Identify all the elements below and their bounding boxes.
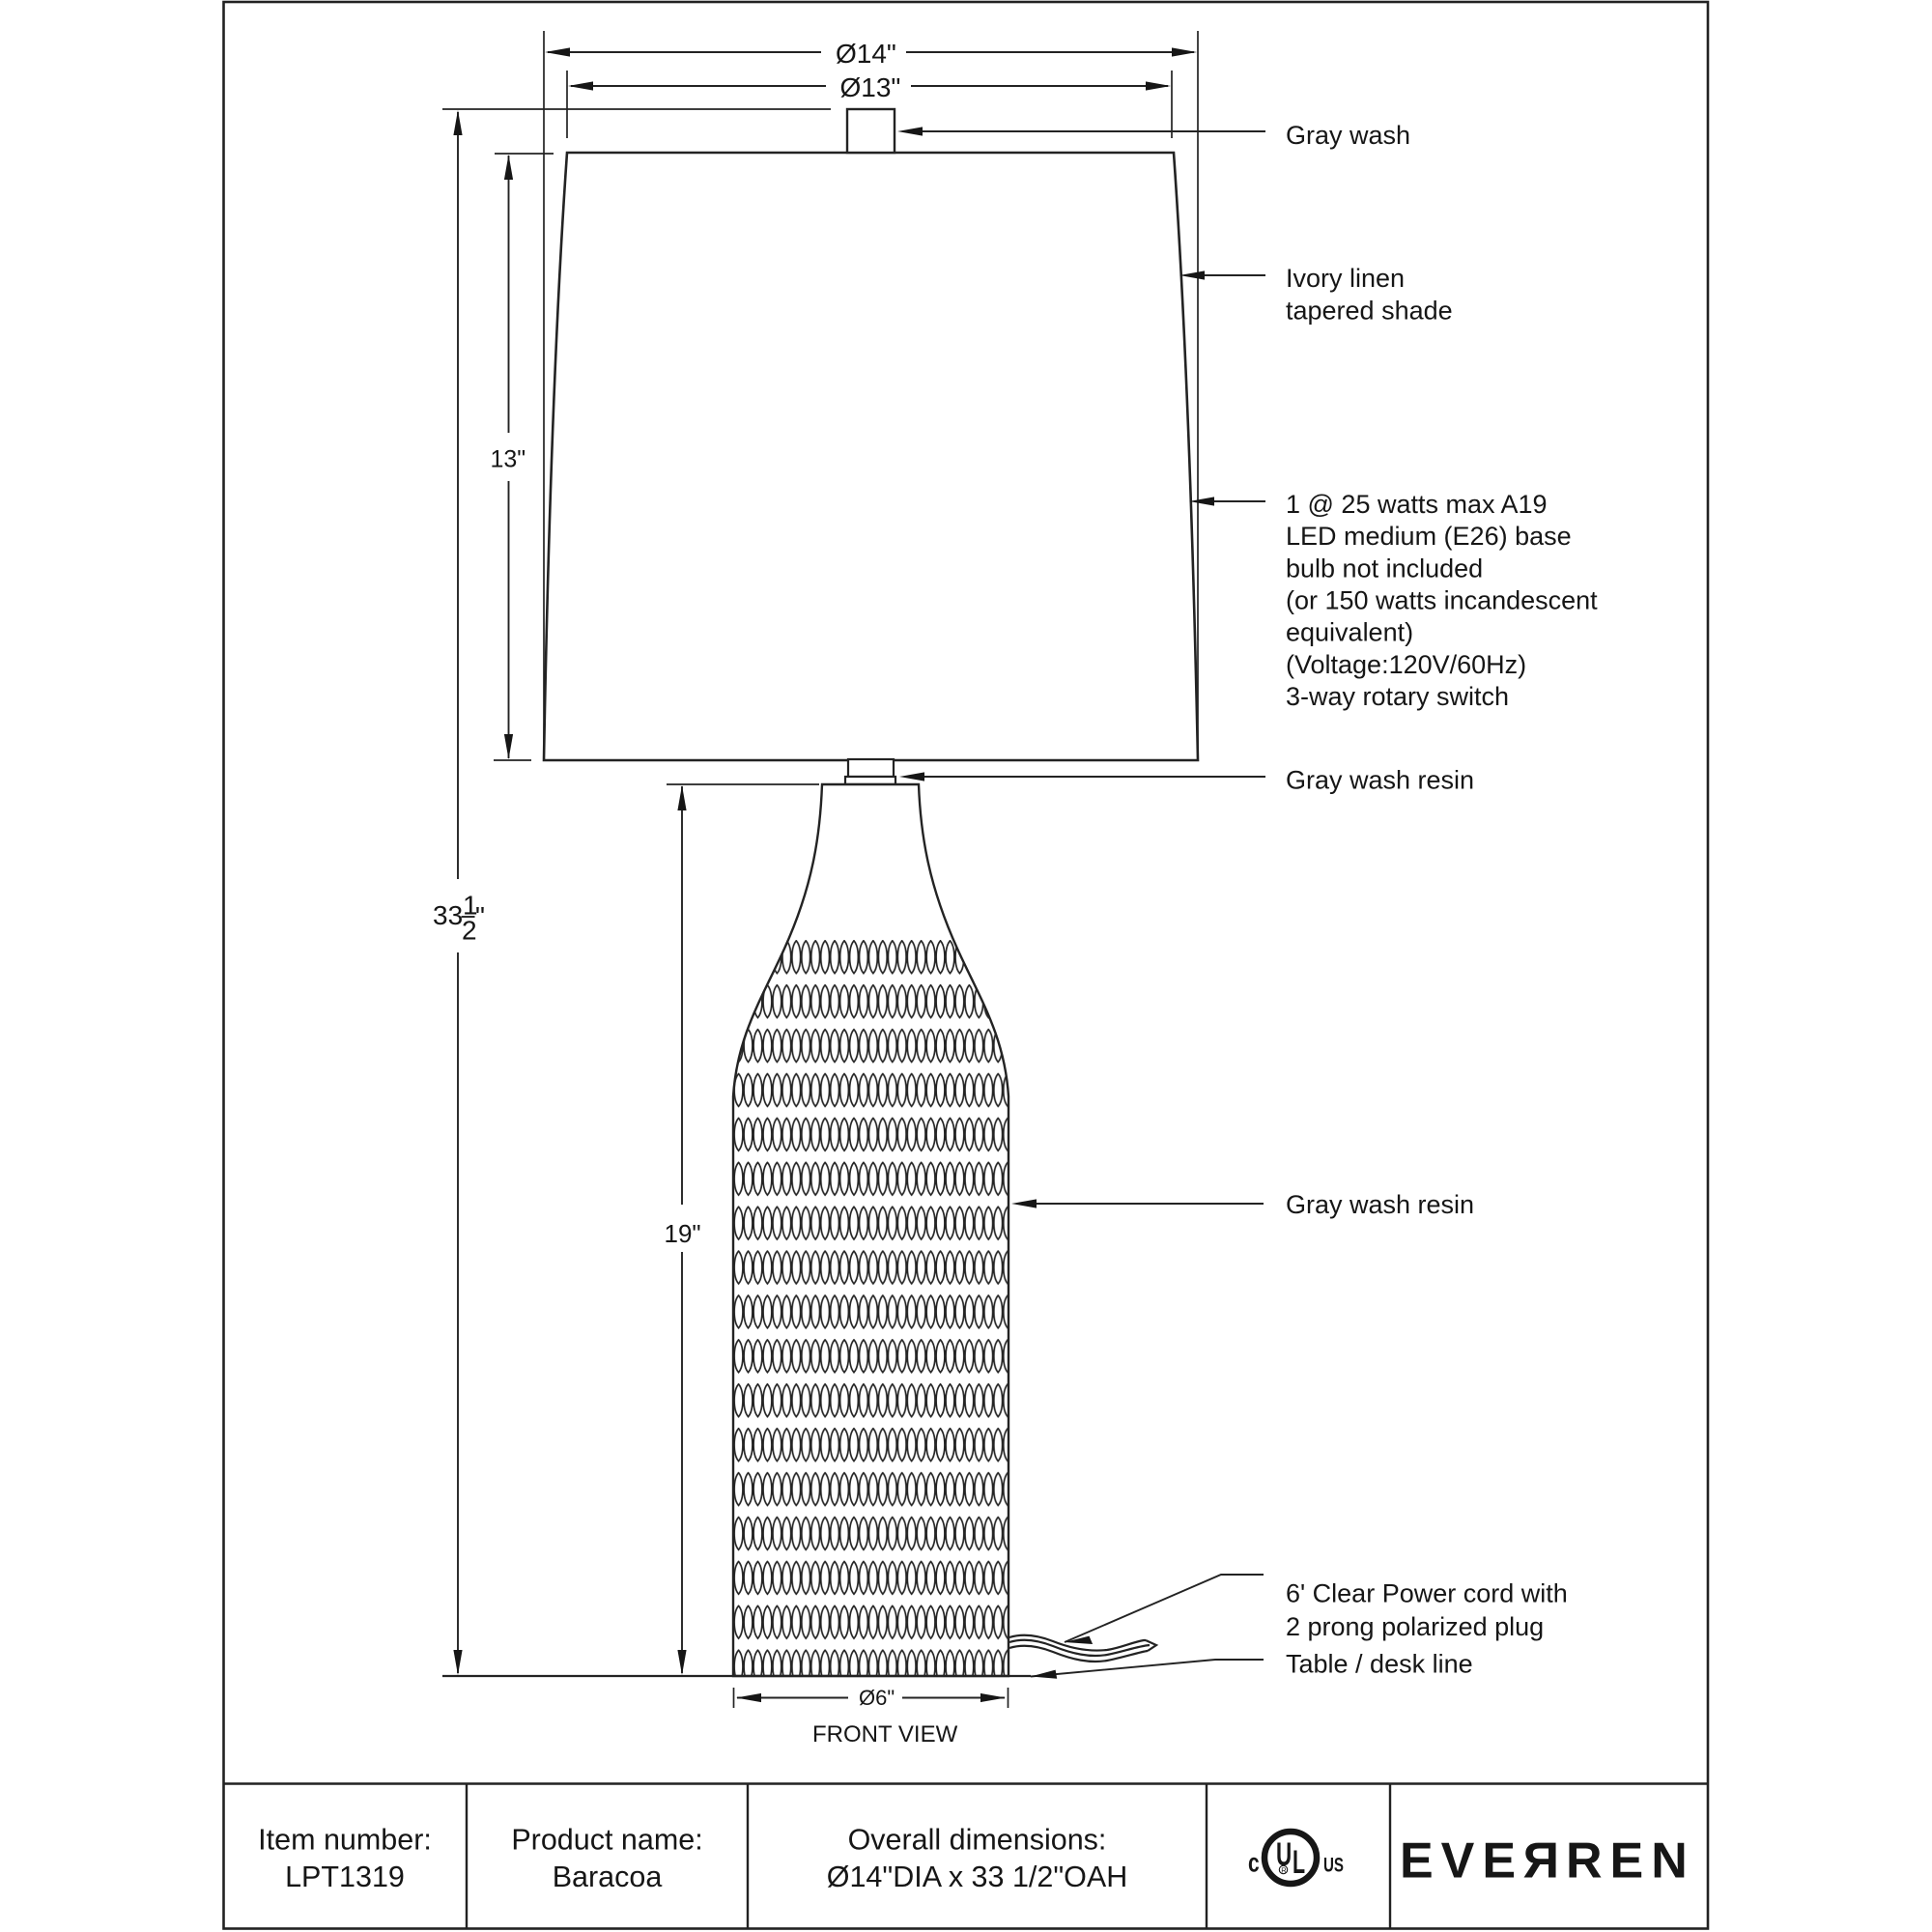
svg-text:33: 33 — [433, 900, 463, 930]
svg-text:R: R — [1515, 1833, 1559, 1889]
svg-text:bulb not included: bulb not included — [1286, 554, 1483, 582]
svg-text:US: US — [1323, 1853, 1344, 1876]
svg-text:6' Clear Power cord with: 6' Clear Power cord with — [1286, 1579, 1568, 1608]
svg-text:Overall dimensions:: Overall dimensions: — [848, 1824, 1107, 1857]
svg-text:Gray wash resin: Gray wash resin — [1286, 1190, 1474, 1219]
svg-text:EVE: EVE — [1400, 1833, 1523, 1889]
svg-text:LED medium (E26) base: LED medium (E26) base — [1286, 522, 1572, 551]
svg-text:(Voltage:120V/60Hz): (Voltage:120V/60Hz) — [1286, 650, 1526, 679]
svg-text:Ø14"DIA x 33 1/2"OAH: Ø14"DIA x 33 1/2"OAH — [827, 1861, 1128, 1893]
svg-text:": " — [475, 901, 485, 931]
svg-text:Product name:: Product name: — [511, 1824, 702, 1857]
svg-text:13": 13" — [491, 446, 526, 473]
svg-text:R: R — [1281, 1865, 1287, 1874]
svg-text:equivalent): equivalent) — [1286, 618, 1413, 647]
svg-text:LPT1319: LPT1319 — [285, 1861, 405, 1893]
svg-text:c: c — [1248, 1849, 1260, 1879]
svg-text:Ø6": Ø6" — [859, 1686, 895, 1710]
svg-text:REN: REN — [1566, 1833, 1695, 1889]
svg-text:1 @ 25 watts max A19: 1 @ 25 watts max A19 — [1286, 490, 1548, 519]
svg-text:Item number:: Item number: — [258, 1824, 432, 1857]
svg-text:Baracoa: Baracoa — [553, 1861, 663, 1893]
svg-text:2 prong polarized plug: 2 prong polarized plug — [1286, 1612, 1544, 1641]
svg-text:Gray wash: Gray wash — [1286, 121, 1410, 150]
svg-text:L: L — [1293, 1844, 1305, 1881]
svg-text:Gray wash resin: Gray wash resin — [1286, 766, 1474, 795]
svg-text:Ivory linen: Ivory linen — [1286, 264, 1405, 293]
svg-text:FRONT VIEW: FRONT VIEW — [812, 1721, 958, 1747]
svg-text:Ø13": Ø13" — [840, 72, 901, 102]
svg-text:3-way rotary switch: 3-way rotary switch — [1286, 682, 1509, 711]
svg-text:(or 150 watts incandescent: (or 150 watts incandescent — [1286, 586, 1598, 615]
svg-text:tapered shade: tapered shade — [1286, 297, 1453, 326]
svg-text:19": 19" — [665, 1219, 701, 1248]
svg-text:Table / desk line: Table / desk line — [1286, 1650, 1473, 1679]
svg-text:Ø14": Ø14" — [836, 39, 896, 69]
